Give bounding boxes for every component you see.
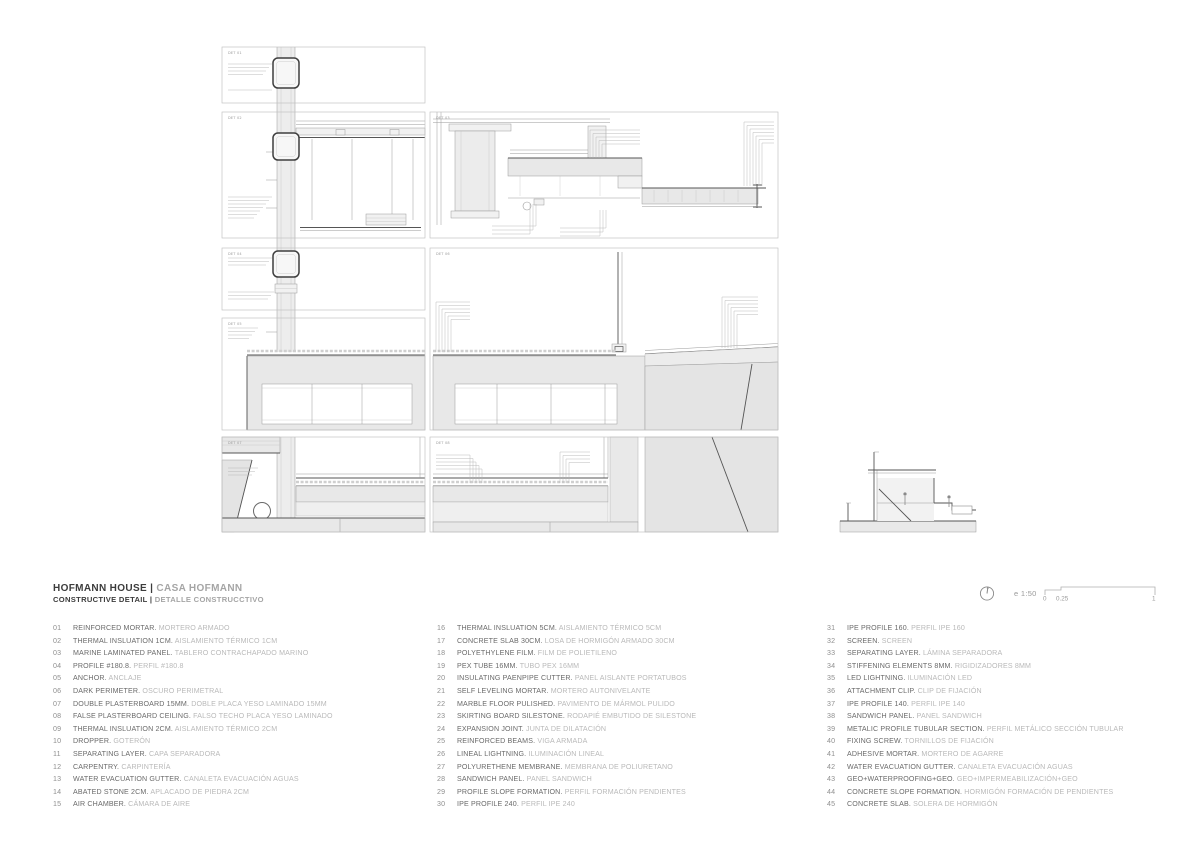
legend-item-number: 23 — [437, 710, 457, 723]
sheet-title-es: CASA HOFMANN — [156, 583, 242, 594]
legend-item-term-en: LED LIGHTNING. — [847, 674, 908, 682]
legend-item-term-en: IPE PROFILE 160. — [847, 624, 911, 632]
legend-item-term-en: MARINE LAMINATED PANEL. — [73, 649, 175, 657]
legend-item-number: 41 — [827, 748, 847, 761]
legend-item-number: 13 — [53, 773, 73, 786]
legend-item-number: 34 — [827, 660, 847, 673]
panel-det-07 — [222, 437, 425, 532]
legend-item-number: 17 — [437, 635, 457, 648]
legend-item-term-en: WATER EVACUATION GUTTER. — [847, 763, 958, 771]
legend-item-term-en: POLYURETHENE MEMBRANE. — [457, 763, 565, 771]
legend-item-number: 26 — [437, 748, 457, 761]
legend-item-number: 09 — [53, 723, 73, 736]
legend-item-term-en: SEPARATING LAYER. — [847, 649, 923, 657]
legend-item-term-en: THERMAL INSLUATION 2CM. — [73, 725, 175, 733]
legend-item-term-es: MORTERO DE AGARRE — [921, 750, 1003, 758]
legend-item-term-en: DOUBLE PLASTERBOARD 15MM. — [73, 700, 191, 708]
legend-item: 17CONCRETE SLAB 30CM. LOSA DE HORMIGÓN A… — [437, 635, 817, 648]
legend-item-term-en: CONCRETE SLAB 30CM. — [457, 637, 545, 645]
legend-item-term-es: VIGA ARMADA — [537, 737, 587, 745]
legend-item-number: 21 — [437, 685, 457, 698]
legend-item-term-en: METALIC PROFILE TUBULAR SECTION. — [847, 725, 987, 733]
legend-item-number: 36 — [827, 685, 847, 698]
legend-item-term-es: FALSO TECHO PLACA YESO LAMINADO — [193, 712, 333, 720]
scale-label: e 1:50 — [1014, 589, 1037, 598]
legend-item-term-en: GEO+WATERPROOFING+GEO. — [847, 775, 957, 783]
legend-item-term-en: FIXING SCREW. — [847, 737, 905, 745]
legend-item-term-en: CARPENTRY. — [73, 763, 121, 771]
panel-label: DET 05 — [228, 322, 242, 326]
legend-item-term-es: CAPA SEPARADORA — [149, 750, 220, 758]
legend-item-term-es: PANEL SANDWICH — [527, 775, 592, 783]
legend-item-term-en: WATER EVACUATION GUTTER. — [73, 775, 184, 783]
legend-item-term-en: INSULATING PAENPIPE CUTTER. — [457, 674, 575, 682]
legend-item: 28SANDWICH PANEL. PANEL SANDWICH — [437, 773, 817, 786]
legend-item: 22MARBLE FLOOR PULISHED. PAVIMENTO DE MÁ… — [437, 698, 817, 711]
legend-item-number: 40 — [827, 735, 847, 748]
legend-item-number: 18 — [437, 647, 457, 660]
legend-item-term-es: GEO+IMPERMEABILIZACIÓN+GEO — [957, 775, 1078, 783]
legend-item-term-en: SANDWICH PANEL. — [457, 775, 527, 783]
legend-item-term-en: ATTACHMENT CLIP. — [847, 687, 918, 695]
legend-item-term-es: CLIP DE FIJACIÓN — [918, 687, 982, 695]
legend-item-term-es: GOTERÓN — [113, 737, 150, 745]
legend-item-term-en: SANDWICH PANEL. — [847, 712, 917, 720]
legend-item-term-es: PERFIL IPE 140 — [911, 700, 965, 708]
legend-item: 39METALIC PROFILE TUBULAR SECTION. PERFI… — [827, 723, 1200, 736]
legend-item: 35LED LIGHTNING. ILUMINACIÓN LED — [827, 672, 1200, 685]
legend-item-number: 16 — [437, 622, 457, 635]
legend-item-number: 24 — [437, 723, 457, 736]
legend-item-term-en: EXPANSION JOINT. — [457, 725, 526, 733]
legend-item-term-es: PERFIL FORMACIÓN PENDIENTES — [565, 788, 686, 796]
legend-item-term-en: STIFFENING ELEMENTS 8MM. — [847, 662, 955, 670]
sheet-subtitle-es: DETALLE CONSTRUCCTIVO — [155, 595, 264, 604]
legend-item: 42WATER EVACUATION GUTTER. CANALETA EVAC… — [827, 761, 1200, 774]
legend-item-term-es: PERFIL IPE 160 — [911, 624, 965, 632]
panel-det-02 — [228, 121, 425, 231]
legend-item: 38SANDWICH PANEL. PANEL SANDWICH — [827, 710, 1200, 723]
panel-label: DET 04 — [228, 252, 242, 256]
legend-item-term-es: MEMBRANA DE POLIURETANO — [565, 763, 673, 771]
legend-item-number: 12 — [53, 761, 73, 774]
legend-item-term-es: PAVIMENTO DE MÁRMOL PULIDO — [557, 700, 675, 708]
legend-item-term-en: DROPPER. — [73, 737, 113, 745]
legend-item-number: 07 — [53, 698, 73, 711]
legend-item-number: 38 — [827, 710, 847, 723]
sheet-subtitle-en: CONSTRUCTIVE DETAIL | — [53, 595, 152, 604]
legend-item: 23SKIRTING BOARD SILESTONE. RODAPIÉ EMBU… — [437, 710, 817, 723]
legend-item-term-es: MORTERO AUTONIVELANTE — [551, 687, 651, 695]
legend-item-number: 42 — [827, 761, 847, 774]
legend-item-term-es: AISLAMIENTO TÉRMICO 2CM — [175, 725, 278, 733]
legend-item-term-es: HORMIGÓN FORMACIÓN DE PENDIENTES — [964, 788, 1113, 796]
panel-det-01 — [228, 58, 299, 90]
legend-item-number: 25 — [437, 735, 457, 748]
legend-item-number: 22 — [437, 698, 457, 711]
legend-item-term-es: PERFIL METÁLICO SECCIÓN TUBULAR — [987, 725, 1124, 733]
legend-item-number: 29 — [437, 786, 457, 799]
legend-item-term-es: CANALETA EVACUACIÓN AGUAS — [958, 763, 1073, 771]
legend-item-term-es: MORTERO ARMADO — [159, 624, 230, 632]
legend-item-term-en: SCREEN. — [847, 637, 882, 645]
legend-item-term-es: ANCLAJE — [109, 674, 142, 682]
legend-item: 21SELF LEVELING MORTAR. MORTERO AUTONIVE… — [437, 685, 817, 698]
legend-item: 27POLYURETHENE MEMBRANE. MEMBRANA DE POL… — [437, 761, 817, 774]
legend-item-term-es: PERFIL #180.8 — [133, 662, 183, 670]
legend-item-term-es: ILUMINACIÓN LED — [908, 674, 973, 682]
legend-item: 06DARK PERIMETER. OSCURO PERIMETRAL — [53, 685, 433, 698]
legend-item-term-en: IPE PROFILE 240. — [457, 800, 521, 808]
legend-item-term-es: LÁMINA SEPARADORA — [923, 649, 1002, 657]
legend-item-term-en: REINFORCED MORTAR. — [73, 624, 159, 632]
legend-item-term-es: JUNTA DE DILATACIÓN — [526, 725, 606, 733]
legend-item-number: 06 — [53, 685, 73, 698]
legend-item: 37IPE PROFILE 140. PERFIL IPE 140 — [827, 698, 1200, 711]
legend-item-number: 27 — [437, 761, 457, 774]
legend-item: 25REINFORCED BEAMS. VIGA ARMADA — [437, 735, 817, 748]
legend-item: 15AIR CHAMBER. CÁMARA DE AIRE — [53, 798, 433, 811]
legend-item-term-en: SKIRTING BOARD SILESTONE. — [457, 712, 567, 720]
legend-item-number: 20 — [437, 672, 457, 685]
legend-item: 10DROPPER. GOTERÓN — [53, 735, 433, 748]
panel-label: DET 08 — [436, 441, 450, 445]
legend-item-term-en: LINEAL LIGHTNING. — [457, 750, 528, 758]
legend-item-term-es: SOLERA DE HORMIGÓN — [913, 800, 998, 808]
legend-item: 31IPE PROFILE 160. PERFIL IPE 160 — [827, 622, 1200, 635]
legend-item-number: 44 — [827, 786, 847, 799]
legend-item-term-es: TUBO PEX 16MM — [520, 662, 580, 670]
legend-item-term-es: SCREEN — [882, 637, 912, 645]
legend-item: 13WATER EVACUATION GUTTER. CANALETA EVAC… — [53, 773, 433, 786]
legend-item: 09THERMAL INSLUATION 2CM. AISLAMIENTO TÉ… — [53, 723, 433, 736]
drawing-area: DET 01 DET 02 DET 03 DET 04 DET 05 DET 0… — [0, 0, 1200, 560]
legend: 01REINFORCED MORTAR. MORTERO ARMADO02THE… — [0, 622, 1200, 822]
legend-item: 32SCREEN. SCREEN — [827, 635, 1200, 648]
legend-item-number: 10 — [53, 735, 73, 748]
legend-item-number: 28 — [437, 773, 457, 786]
legend-item-term-es: AISLAMIENTO TÉRMICO 1CM — [175, 637, 278, 645]
legend-item-number: 05 — [53, 672, 73, 685]
legend-item-term-en: REINFORCED BEAMS. — [457, 737, 537, 745]
legend-item-term-es: TABLERO CONTRACHAPADO MARINO — [175, 649, 309, 657]
legend-item-number: 33 — [827, 647, 847, 660]
legend-item: 20INSULATING PAENPIPE CUTTER. PANEL AISL… — [437, 672, 817, 685]
legend-item-number: 03 — [53, 647, 73, 660]
legend-item-term-es: CANALETA EVACUACIÓN AGUAS — [184, 775, 299, 783]
legend-item-number: 30 — [437, 798, 457, 811]
legend-item-number: 08 — [53, 710, 73, 723]
legend-item-term-en: ANCHOR. — [73, 674, 109, 682]
legend-item-term-es: AISLAMIENTO TÉRMICO 5CM — [559, 624, 662, 632]
legend-item-term-en: DARK PERIMETER. — [73, 687, 142, 695]
panel-det-08 — [433, 437, 778, 532]
scale-tick-1: 1 — [1152, 596, 1156, 603]
legend-item-term-es: APLACADO DE PIEDRA 2CM — [150, 788, 249, 796]
legend-item-term-es: RODAPIÉ EMBUTIDO DE SILESTONE — [567, 712, 696, 720]
scale-tick-0: 0 — [1043, 596, 1047, 603]
legend-item-number: 45 — [827, 798, 847, 811]
sheet-title-en: HOFMANN HOUSE | — [53, 583, 153, 594]
legend-item-term-en: CONCRETE SLAB. — [847, 800, 913, 808]
legend-item: 44CONCRETE SLOPE FORMATION. HORMIGÓN FOR… — [827, 786, 1200, 799]
legend-item: 14ABATED STONE 2CM. APLACADO DE PIEDRA 2… — [53, 786, 433, 799]
legend-item-term-es: TORNILLOS DE FIJACIÓN — [905, 737, 994, 745]
panel-det-04 — [228, 251, 299, 299]
legend-item: 33SEPARATING LAYER. LÁMINA SEPARADORA — [827, 647, 1200, 660]
legend-item-number: 37 — [827, 698, 847, 711]
panel-label: DET 02 — [228, 116, 242, 120]
legend-item: 16THERMAL INSLUATION 5CM. AISLAMIENTO TÉ… — [437, 622, 817, 635]
legend-item: 12CARPENTRY. CARPINTERÍA — [53, 761, 433, 774]
legend-item-term-es: FILM DE POLIETILENO — [538, 649, 617, 657]
legend-column-3: 31IPE PROFILE 160. PERFIL IPE 16032SCREE… — [827, 622, 1200, 811]
legend-item: 03MARINE LAMINATED PANEL. TABLERO CONTRA… — [53, 647, 433, 660]
legend-item-term-en: CONCRETE SLOPE FORMATION. — [847, 788, 964, 796]
legend-item: 05ANCHOR. ANCLAJE — [53, 672, 433, 685]
panel-det-03 — [433, 112, 774, 236]
legend-item-term-en: SEPARATING LAYER. — [73, 750, 149, 758]
legend-item-term-en: THERMAL INSLUATION 1CM. — [73, 637, 175, 645]
sheet-subtitle: CONSTRUCTIVE DETAIL | DETALLE CONSTRUCCT… — [53, 595, 264, 605]
legend-item-number: 04 — [53, 660, 73, 673]
legend-item: 18POLYETHYLENE FILM. FILM DE POLIETILENO — [437, 647, 817, 660]
legend-item-term-en: SELF LEVELING MORTAR. — [457, 687, 551, 695]
legend-item-number: 35 — [827, 672, 847, 685]
legend-item-term-en: PROFILE SLOPE FORMATION. — [457, 788, 565, 796]
legend-item: 45CONCRETE SLAB. SOLERA DE HORMIGÓN — [827, 798, 1200, 811]
legend-item-number: 32 — [827, 635, 847, 648]
legend-item-term-es: ILUMINACIÓN LINEAL — [528, 750, 604, 758]
sheet-title: HOFMANN HOUSE | CASA HOFMANN — [53, 583, 264, 595]
legend-item: 19PEX TUBE 16MM. TUBO PEX 16MM — [437, 660, 817, 673]
scale-bar: 0 0.25 1 — [1042, 583, 1162, 603]
legend-item: 43GEO+WATERPROOFING+GEO. GEO+IMPERMEABIL… — [827, 773, 1200, 786]
title-block: HOFMANN HOUSE | CASA HOFMANN CONSTRUCTIV… — [53, 583, 264, 605]
legend-column-1: 01REINFORCED MORTAR. MORTERO ARMADO02THE… — [53, 622, 433, 811]
north-arrow-icon — [978, 584, 996, 602]
legend-item: 07DOUBLE PLASTERBOARD 15MM. DOBLE PLACA … — [53, 698, 433, 711]
legend-item-term-es: LOSA DE HORMIGÓN ARMADO 30CM — [545, 637, 675, 645]
legend-item-term-es: OSCURO PERIMETRAL — [142, 687, 223, 695]
legend-item-number: 19 — [437, 660, 457, 673]
legend-item: 30IPE PROFILE 240. PERFIL IPE 240 — [437, 798, 817, 811]
legend-item-term-es: PANEL SANDWICH — [917, 712, 982, 720]
legend-item-number: 01 — [53, 622, 73, 635]
legend-item-term-es: DOBLE PLACA YESO LAMINADO 15MM — [191, 700, 327, 708]
sheet: { "sheet": { "title_left": "HOFMANN HOUS… — [0, 0, 1200, 849]
legend-item-term-en: IPE PROFILE 140. — [847, 700, 911, 708]
panel-det-05 — [228, 328, 425, 430]
legend-item-term-es: PANEL AISLANTE PORTATUBOS — [575, 674, 687, 682]
panel-label: DET 01 — [228, 51, 242, 55]
legend-item-number: 43 — [827, 773, 847, 786]
panel-label: DET 07 — [228, 441, 242, 445]
panel-label: DET 06 — [436, 252, 450, 256]
legend-item-number: 11 — [53, 748, 73, 761]
legend-item-term-en: MARBLE FLOOR PULISHED. — [457, 700, 557, 708]
legend-item: 02THERMAL INSLUATION 1CM. AISLAMIENTO TÉ… — [53, 635, 433, 648]
legend-item: 11SEPARATING LAYER. CAPA SEPARADORA — [53, 748, 433, 761]
legend-item-term-en: THERMAL INSLUATION 5CM. — [457, 624, 559, 632]
legend-item-term-en: FALSE PLASTERBOARD CEILING. — [73, 712, 193, 720]
panel-det-06 — [433, 252, 778, 430]
legend-item: 08FALSE PLASTERBOARD CEILING. FALSO TECH… — [53, 710, 433, 723]
legend-item: 34STIFFENING ELEMENTS 8MM. RIGIDIZADORES… — [827, 660, 1200, 673]
legend-item-term-es: CÁMARA DE AIRE — [128, 800, 190, 808]
legend-item-number: 15 — [53, 798, 73, 811]
legend-item-term-en: ADHESIVE MORTAR. — [847, 750, 921, 758]
legend-column-2: 16THERMAL INSLUATION 5CM. AISLAMIENTO TÉ… — [437, 622, 817, 811]
legend-item-term-es: RIGIDIZADORES 8MM — [955, 662, 1031, 670]
legend-item-term-es: CARPINTERÍA — [121, 763, 170, 771]
key-section — [840, 452, 976, 532]
legend-item-term-en: PEX TUBE 16MM. — [457, 662, 520, 670]
legend-item: 36ATTACHMENT CLIP. CLIP DE FIJACIÓN — [827, 685, 1200, 698]
legend-item-term-en: ABATED STONE 2CM. — [73, 788, 150, 796]
legend-item-number: 39 — [827, 723, 847, 736]
panel-label: DET 03 — [436, 116, 450, 120]
legend-item: 01REINFORCED MORTAR. MORTERO ARMADO — [53, 622, 433, 635]
scale-block: e 1:50 0 0.25 1 — [978, 583, 1163, 605]
person-figure-icon — [947, 495, 950, 507]
legend-item: 24EXPANSION JOINT. JUNTA DE DILATACIÓN — [437, 723, 817, 736]
legend-item-term-en: POLYETHYLENE FILM. — [457, 649, 538, 657]
legend-item-number: 31 — [827, 622, 847, 635]
scale-tick-025: 0.25 — [1056, 596, 1069, 603]
legend-item: 41ADHESIVE MORTAR. MORTERO DE AGARRE — [827, 748, 1200, 761]
legend-item-number: 02 — [53, 635, 73, 648]
legend-item-term-es: PERFIL IPE 240 — [521, 800, 575, 808]
legend-item: 40FIXING SCREW. TORNILLOS DE FIJACIÓN — [827, 735, 1200, 748]
legend-item: 26LINEAL LIGHTNING. ILUMINACIÓN LINEAL — [437, 748, 817, 761]
legend-item-term-en: AIR CHAMBER. — [73, 800, 128, 808]
legend-item: 29PROFILE SLOPE FORMATION. PERFIL FORMAC… — [437, 786, 817, 799]
legend-item-number: 14 — [53, 786, 73, 799]
legend-item-term-en: PROFILE #180.8. — [73, 662, 133, 670]
legend-item: 04PROFILE #180.8. PERFIL #180.8 — [53, 660, 433, 673]
